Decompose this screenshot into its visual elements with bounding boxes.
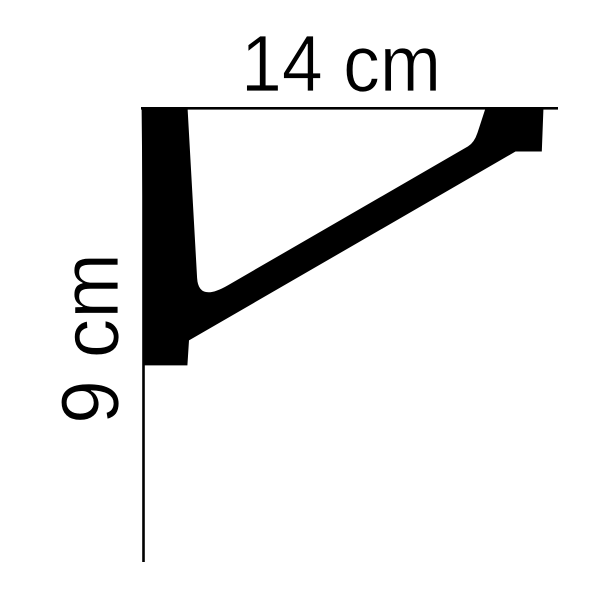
svg-text:9 cm: 9 cm	[45, 253, 136, 424]
svg-text:14 cm: 14 cm	[241, 19, 441, 108]
